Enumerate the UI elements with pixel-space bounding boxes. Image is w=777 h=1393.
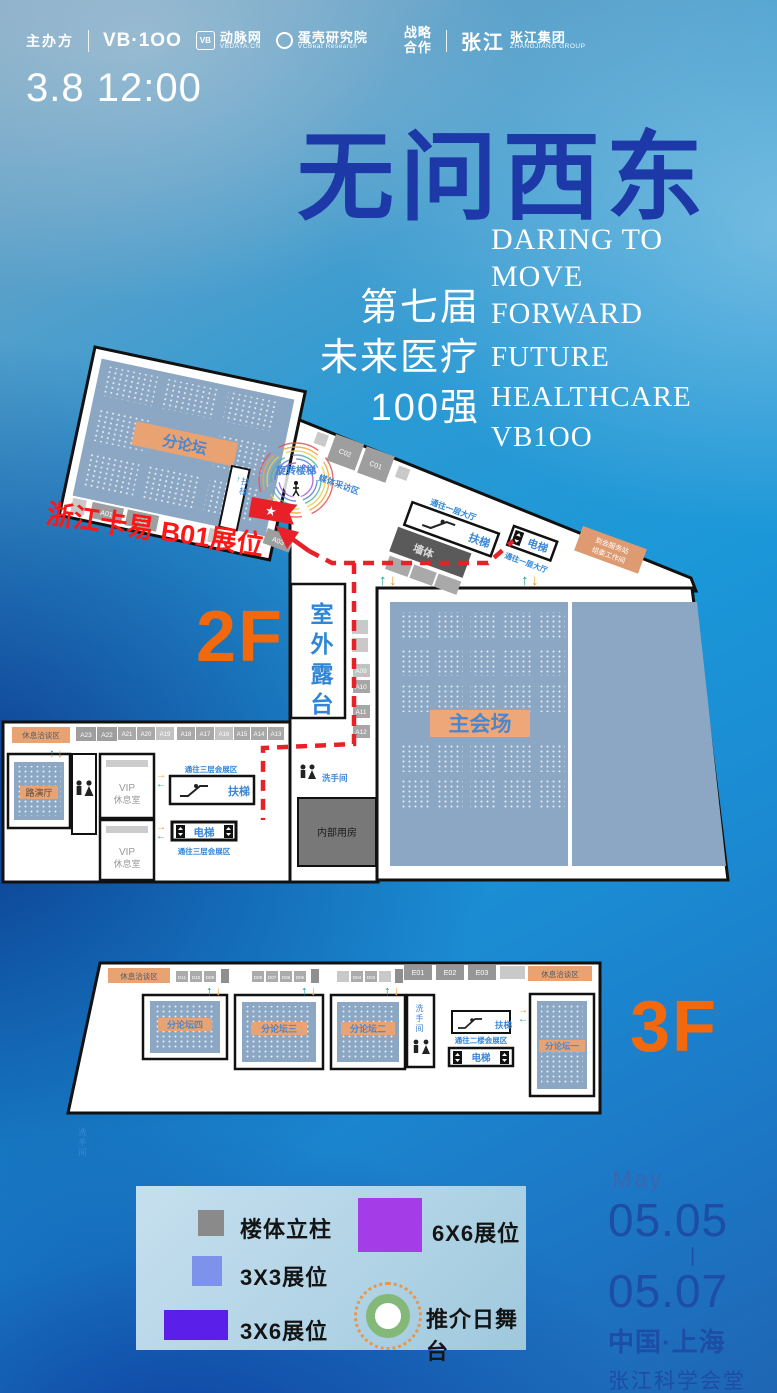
restroom-label: 洗手间 [322,773,348,783]
booth-label: D09 [206,975,215,980]
booth-label: D07 [268,975,277,980]
door-arrow-down-icon: ↓ [393,983,400,998]
legend-stage-icon [354,1282,422,1350]
legend-6x6-label: 6X6展位 [432,1216,520,1248]
forum-room-2: 分论坛二 ↑ ↓ [331,983,405,1069]
door-arrow-up-icon: ↑ [206,983,213,998]
internal-room-label: 内部用房 [317,826,357,839]
vip-label2: 休息室 [113,794,140,805]
door-arrow-up-icon: ↑ [521,572,529,589]
escalator-label: 扶梯 [228,784,250,798]
elevator-icon [224,825,233,838]
legend-3x6-swatch [164,1310,228,1340]
escalator-label: 扶梯 [495,1020,513,1030]
legend-column-label: 楼体立柱 [240,1212,332,1244]
booth-label: A19 [160,732,171,738]
restroom-vertical-label-2f: 洗手间 [77,1128,88,1158]
legend-3x6-label: 3X6展位 [240,1314,328,1346]
escalator-3f: 扶梯 通往二楼会展区 电梯 [449,1011,513,1066]
main-hall-right [572,602,726,866]
elevator-icon [500,1051,509,1064]
forum-room-1: 分论坛一 → ← [518,994,594,1096]
lounge-band-label: 休息洽谈区 [120,971,158,981]
booth-label: A21 [122,732,133,738]
booth-label: A22 [101,732,113,739]
to-floor2-label: 通往二楼会展区 [455,1035,508,1045]
door-arrow-down-icon: ↓ [57,746,63,760]
venue-label: 张江科学会堂 [608,1365,758,1393]
door-arrow-down-icon: ↓ [389,572,397,589]
legend-3x3-label: 3X3展位 [240,1260,328,1292]
booth-label: A15 [237,732,248,738]
column [221,969,229,983]
booth-label: E02 [444,970,457,977]
terrace-label: 室外露台 [303,602,337,722]
booth-label: A09 [355,668,367,675]
forum-room-3: 分论坛三 ↑ ↓ [235,983,323,1069]
booth-label: A14 [254,732,265,738]
start-date: 05.05 [608,1194,758,1247]
arrow-left-icon: ← [156,779,166,790]
elevator-label: 电梯 [194,826,215,839]
legend-3x3-swatch [192,1256,222,1286]
to-floor3-label: 通往三层会展区 [178,846,231,856]
room-label: 分论坛三 [261,1023,297,1034]
vip-label: VIP [119,783,135,794]
booth-label: A13 [271,732,282,738]
booth-label: D05 [296,975,305,980]
month-label: May [612,1166,758,1194]
column [311,969,319,983]
floor3-map: 休息洽谈区 休息洽谈区 D11 D10 D09 D08 D07 D06 D05 … [68,963,600,1113]
booth-label: A16 [219,732,230,738]
booth-label: D11 [178,975,186,980]
door-arrow-up-icon: ↑ [301,983,308,998]
lounge-band-label: 休息洽谈区 [22,730,60,740]
booth-label: A17 [200,732,211,738]
booth-label: A20 [141,732,152,738]
booth-label: E03 [476,970,489,977]
door-arrow-down-icon: ↓ [310,983,317,998]
booth-label: A12 [355,729,367,736]
booth-label: D10 [192,975,201,980]
top-booths: A23 A22 A21 A20 A19 A18 A17 A16 A15 A14 … [76,727,284,741]
city-label: 中国·上海 [608,1322,758,1359]
floor2-map: 内部用房 主会场 ↑ ↓ ↑ ↓ A09 A10 A1 [3,347,728,882]
booth-label: A11 [355,709,366,716]
door-arrow-up-icon: ↑ [49,746,55,760]
end-date: 05.07 [608,1265,758,1318]
vip-label: VIP [119,847,135,858]
door-arrow-down-icon: ↓ [531,572,539,589]
elevator-icon [453,1051,462,1064]
column [395,969,403,983]
to-floor3-label: 通往三层会展区 [185,764,238,774]
booth-label: E01 [412,970,425,977]
legend-panel: 楼体立柱 3X3展位 3X6展位 6X6展位 推介日舞台 [136,1186,526,1350]
room-label: 分论坛二 [350,1023,386,1034]
lounge-band-label: 休息洽谈区 [541,969,579,979]
elevator-icon [176,825,185,838]
booth-label: D08 [254,975,263,980]
door-arrow-up-icon: ↑ [384,983,391,998]
legend-6x6-swatch [358,1198,422,1252]
booth-label: D04 [353,975,362,980]
date-separator: | [690,1247,758,1265]
booth-label: D03 [367,975,376,980]
wing-2f: 休息洽谈区 A23 A22 A21 A20 A19 A18 A17 A16 A1… [3,722,290,882]
event-dates: May 05.05 | 05.07 中国·上海 张江科学会堂 [608,1166,758,1393]
booth-label: A10 [355,684,367,691]
door-arrow-up-icon: ↑ [379,572,387,589]
spiral-stair-label: 旋转楼梯 [275,464,316,477]
booth-label: D06 [282,975,291,980]
forum-room-4: 分论坛四 ↑ ↓ [143,983,227,1059]
restroom-vertical-label-3f: 洗手间 [414,1004,425,1034]
arrow-left-icon: ← [156,831,166,842]
legend-stage-label: 推介日舞台 [426,1302,526,1366]
poster: 主办方 VB·1OO VB 动脉网VBDATA.CN 蛋壳研究院VCBeat R… [0,0,777,1393]
room-label: 分论坛四 [167,1019,203,1030]
arrow-left-icon: ← [518,1014,528,1025]
roadshow-label: 路演厅 [25,787,52,798]
main-hall-label: 主会场 [449,712,512,736]
elevator-label: 电梯 [471,1052,491,1064]
room-label: 分论坛一 [545,1041,580,1051]
booth-label: A18 [181,732,192,738]
d-booths: D11 D10 D09 D08 D07 D06 D05 D04 D03 [176,969,403,983]
legend-column-swatch [198,1210,224,1236]
booth-label: A23 [80,732,92,739]
door-arrow-down-icon: ↓ [215,983,222,998]
vip-label2: 休息室 [113,858,140,869]
